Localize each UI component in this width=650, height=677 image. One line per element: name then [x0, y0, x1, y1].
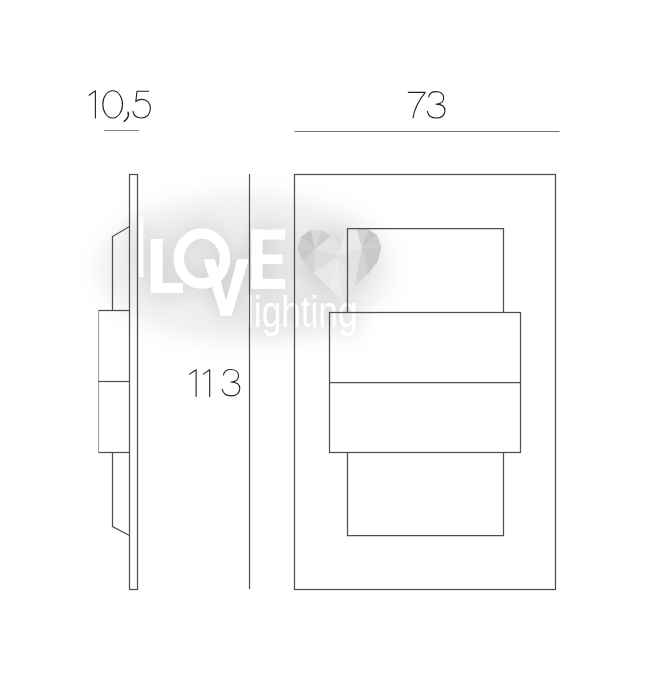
svg-text:lighting: lighting — [246, 287, 358, 336]
